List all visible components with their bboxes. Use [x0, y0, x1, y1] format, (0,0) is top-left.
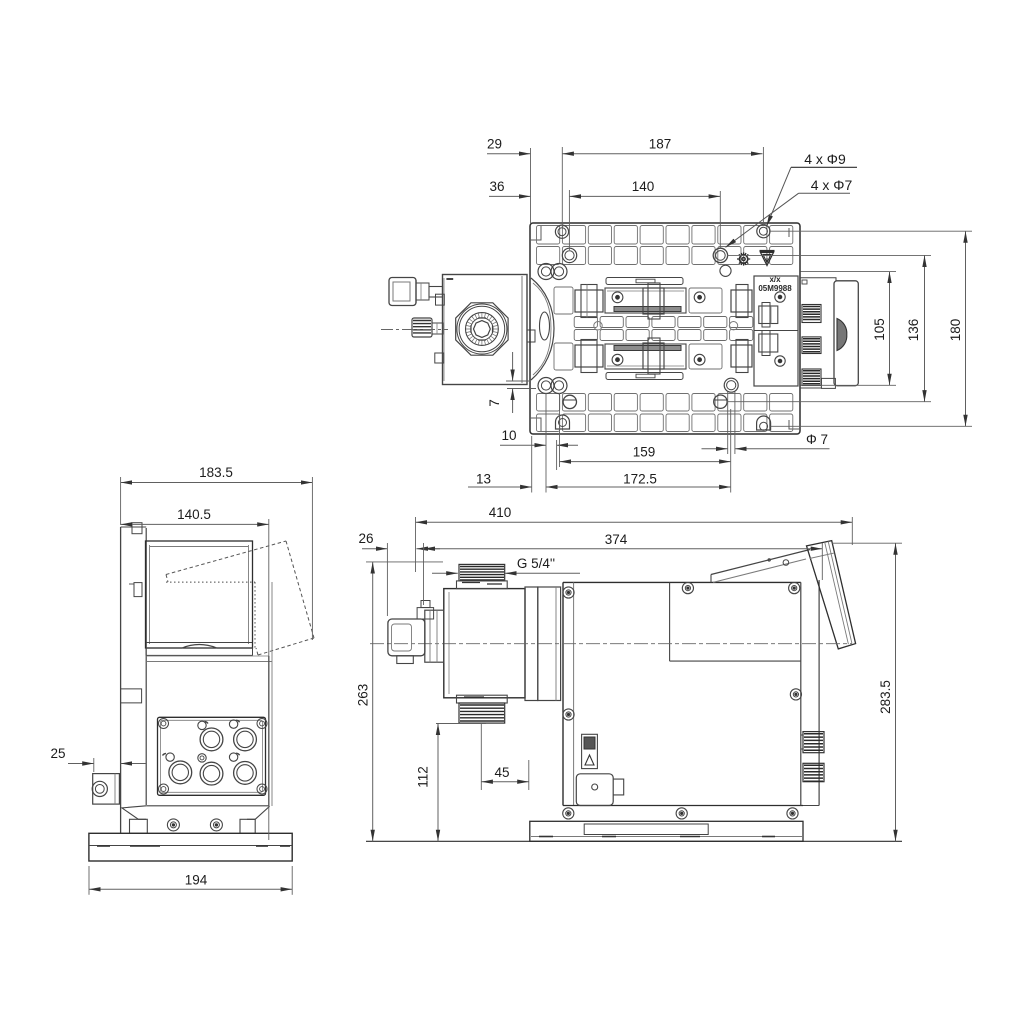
svg-text:4 x Φ9: 4 x Φ9 — [804, 151, 846, 167]
svg-text:183.5: 183.5 — [199, 465, 233, 480]
svg-text:Φ 7: Φ 7 — [806, 432, 828, 447]
svg-text:26: 26 — [358, 531, 373, 546]
svg-text:159: 159 — [633, 444, 656, 459]
svg-text:25: 25 — [50, 746, 65, 761]
svg-text:263: 263 — [356, 684, 371, 707]
svg-text:05M9988: 05M9988 — [758, 284, 792, 293]
svg-text:G 5/4'': G 5/4'' — [517, 556, 555, 571]
svg-text:140.5: 140.5 — [177, 507, 211, 522]
svg-text:172.5: 172.5 — [623, 471, 657, 486]
svg-text:140: 140 — [632, 179, 655, 194]
svg-text:36: 36 — [489, 179, 504, 194]
svg-text:136: 136 — [906, 319, 921, 342]
svg-text:7: 7 — [487, 399, 502, 407]
svg-text:410: 410 — [489, 505, 512, 520]
svg-text:112: 112 — [416, 766, 431, 788]
svg-text:180: 180 — [948, 319, 963, 342]
svg-text:187: 187 — [649, 137, 672, 152]
svg-text:283.5: 283.5 — [878, 680, 893, 714]
svg-text:45: 45 — [494, 765, 509, 780]
svg-text:374: 374 — [605, 532, 628, 547]
svg-text:4 x Φ7: 4 x Φ7 — [811, 177, 853, 193]
svg-text:29: 29 — [487, 137, 502, 152]
svg-text:105: 105 — [872, 318, 887, 341]
svg-text:10: 10 — [501, 428, 516, 443]
svg-text:13: 13 — [476, 471, 491, 486]
svg-text:194: 194 — [185, 873, 208, 888]
